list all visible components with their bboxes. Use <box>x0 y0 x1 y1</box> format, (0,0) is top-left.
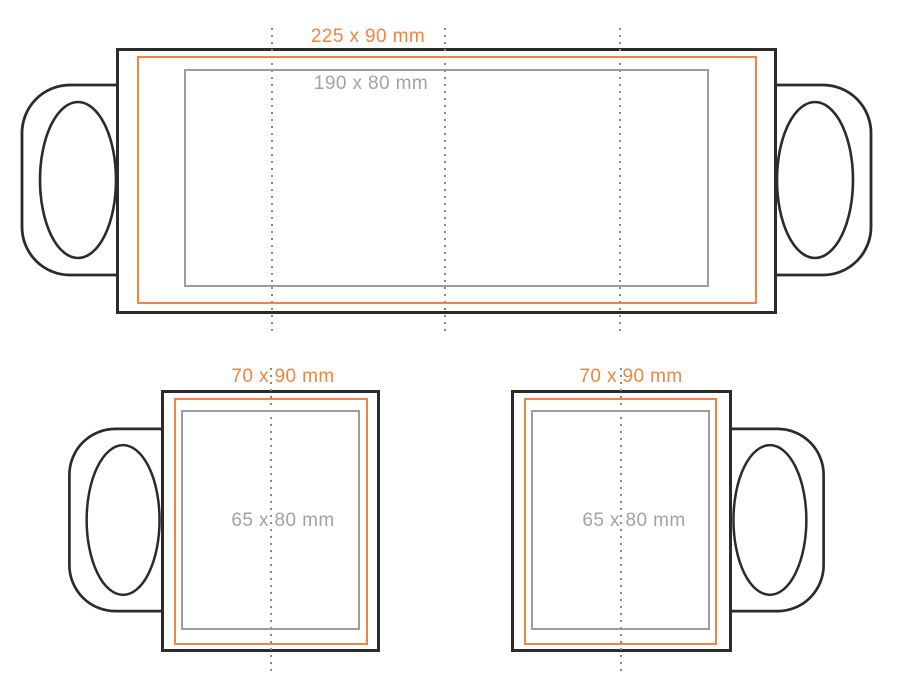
safe-area-outline <box>184 69 709 287</box>
mug-handle-right-icon <box>730 426 829 614</box>
mug-handle-left-icon <box>64 426 163 614</box>
safe-area-label: 190 x 80 mm <box>314 74 428 94</box>
print-area-label: 70 x 90 mm <box>579 367 682 387</box>
print-area-label: 70 x 90 mm <box>231 367 334 387</box>
mug-handle-right-icon <box>775 82 875 278</box>
mug-handle-left-icon <box>18 82 118 278</box>
safe-area-label: 65 x 80 mm <box>582 511 685 531</box>
safe-area-label: 65 x 80 mm <box>231 511 334 531</box>
print-area-label: 225 x 90 mm <box>311 27 425 47</box>
mug-print-template-diagram: 225 x 90 mm 190 x 80 mm 70 x 90 mm 65 x … <box>0 0 900 682</box>
